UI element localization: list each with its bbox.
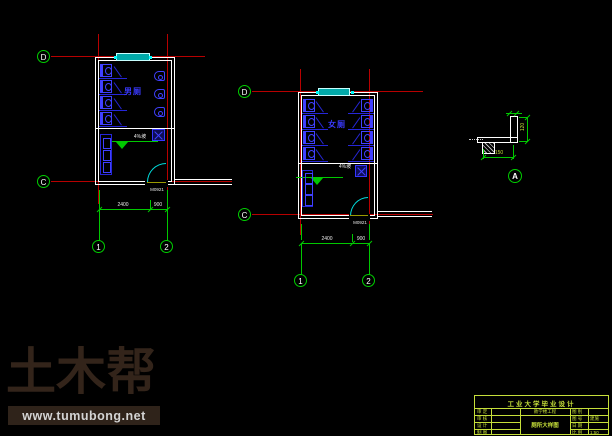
stall-door-line — [114, 82, 122, 93]
detail-dim-bottom: 150 — [489, 150, 509, 156]
toilet-icon — [100, 80, 112, 93]
dimension-line — [99, 209, 168, 210]
grid-bubble-d: D — [37, 50, 50, 63]
stall-door-line — [316, 101, 324, 112]
toilet-icon — [361, 131, 373, 144]
dim-tick — [511, 155, 517, 161]
toilet-icon — [303, 99, 315, 112]
toilet-icon — [361, 115, 373, 128]
grid-leader-line — [99, 210, 100, 241]
window-grip — [149, 56, 152, 59]
slope-symbol-triangle — [116, 142, 128, 149]
toilet-icon — [303, 147, 315, 160]
detail-vertical-member — [510, 116, 518, 143]
grid-bubble-c: C — [37, 175, 50, 188]
title-block-label: 比 例 — [572, 430, 582, 436]
sink-counter — [100, 134, 112, 175]
stall-door-line — [114, 66, 122, 77]
urinal-icon — [154, 71, 165, 81]
stall-door-line — [316, 133, 324, 144]
corridor-wall-line — [175, 184, 232, 185]
title-block-label: 审 定 — [477, 409, 487, 415]
dim-extension-line — [301, 224, 302, 240]
title-block-label: 图 别 — [572, 409, 582, 415]
plan1-room-label: 男厕 — [124, 86, 154, 97]
detail-dim-right: 120 — [520, 123, 526, 131]
stall-door-line — [114, 114, 122, 125]
plan1-dim-main: 2400 — [108, 202, 138, 208]
door-leaf-line — [350, 215, 368, 216]
title-block: 工业大学毕业设计 审 定 审 核 设 计 制 图 教学楼工程 厕所大样图 图 别… — [474, 395, 609, 435]
plan2-window — [318, 88, 350, 96]
toilet-icon — [361, 147, 373, 160]
stall-door-line — [352, 101, 360, 112]
toilet-icon — [303, 131, 315, 144]
toilet-stall — [302, 146, 328, 162]
dimension-line — [301, 243, 370, 244]
grid-leader-line — [167, 210, 168, 241]
corridor-wall-line — [378, 216, 432, 217]
toilet-stall — [348, 130, 374, 146]
corridor-wall-line — [378, 211, 432, 212]
grid-leader-line — [301, 244, 302, 275]
dimension-line — [483, 157, 514, 158]
dim-extension-line — [167, 190, 168, 209]
toilet-stall — [99, 79, 127, 95]
door-leaf-line — [147, 182, 166, 183]
sink-counter — [302, 170, 313, 207]
title-block-label: 审 核 — [477, 416, 487, 422]
toilet-stall — [348, 146, 374, 162]
floor-drain-icon — [152, 129, 165, 141]
plan2-slope-note: 4%坡 — [333, 163, 357, 170]
plan2-room-label: 女厕 — [328, 119, 358, 130]
toilet-stall — [302, 98, 328, 114]
title-block-value: 1:50 — [590, 430, 599, 435]
detail-bubble-a: A — [508, 169, 522, 183]
grid-bubble-c: C — [238, 208, 251, 221]
urinal-icon — [154, 89, 165, 99]
watermark-url: www.tumubong.net — [8, 409, 160, 423]
title-block-drawing-name: 厕所大样图 — [521, 421, 569, 429]
grid-bubble-1: 1 — [92, 240, 105, 253]
dim-extension-line — [99, 190, 100, 209]
grid-bubble-d: D — [238, 85, 251, 98]
grid-bubble-2: 2 — [362, 274, 375, 287]
title-block-title: 工业大学毕业设计 — [475, 398, 608, 408]
title-block-project: 教学楼工程 — [521, 409, 569, 415]
toilet-stall — [99, 63, 127, 79]
stall-door-line — [352, 133, 360, 144]
urinal-icon — [154, 107, 165, 117]
title-block-line — [491, 408, 492, 434]
stall-door-line — [352, 149, 360, 160]
toilet-stall — [302, 130, 328, 146]
title-block-line — [570, 408, 571, 434]
dim-tick — [525, 139, 531, 145]
title-block-label: 图 号 — [572, 416, 582, 422]
toilet-icon — [100, 64, 112, 77]
toilet-stall — [348, 98, 374, 114]
window-grip — [316, 91, 319, 94]
plan1-dim-door: 900 — [149, 202, 167, 208]
plan2-dim-main: 2400 — [312, 236, 342, 242]
watermark-url-bar: www.tumubong.net — [8, 406, 160, 425]
cad-drawing-canvas: 男厕 4%坡 M0921 2400 900 D C 1 2 — [0, 0, 612, 436]
grid-bubble-1: 1 — [294, 274, 307, 287]
toilet-icon — [361, 99, 373, 112]
window-grip — [114, 56, 117, 59]
title-block-label: 制 图 — [477, 430, 487, 436]
title-block-value: 建施 — [590, 416, 599, 422]
title-block-line — [588, 408, 589, 434]
window-grip — [351, 91, 354, 94]
title-block-label: 日 期 — [572, 423, 582, 429]
corridor-wall-line — [175, 179, 232, 180]
dimension-line — [527, 117, 528, 142]
toilet-stall — [99, 111, 127, 127]
toilet-icon — [100, 112, 112, 125]
plan1-window — [116, 53, 150, 61]
toilet-stall — [99, 95, 127, 111]
title-block-label: 设 计 — [477, 423, 487, 429]
grid-leader-line — [369, 244, 370, 275]
toilet-icon — [303, 115, 315, 128]
plan2-dim-door: 900 — [352, 236, 370, 242]
toilet-stall — [302, 114, 328, 130]
stall-door-line — [316, 149, 324, 160]
plan1-slope-note: 4%坡 — [128, 133, 152, 140]
stall-door-line — [114, 98, 122, 109]
grid-bubble-2: 2 — [160, 240, 173, 253]
stall-door-line — [316, 117, 324, 128]
toilet-icon — [100, 96, 112, 109]
watermark-brand: 土木帮 — [6, 346, 186, 399]
